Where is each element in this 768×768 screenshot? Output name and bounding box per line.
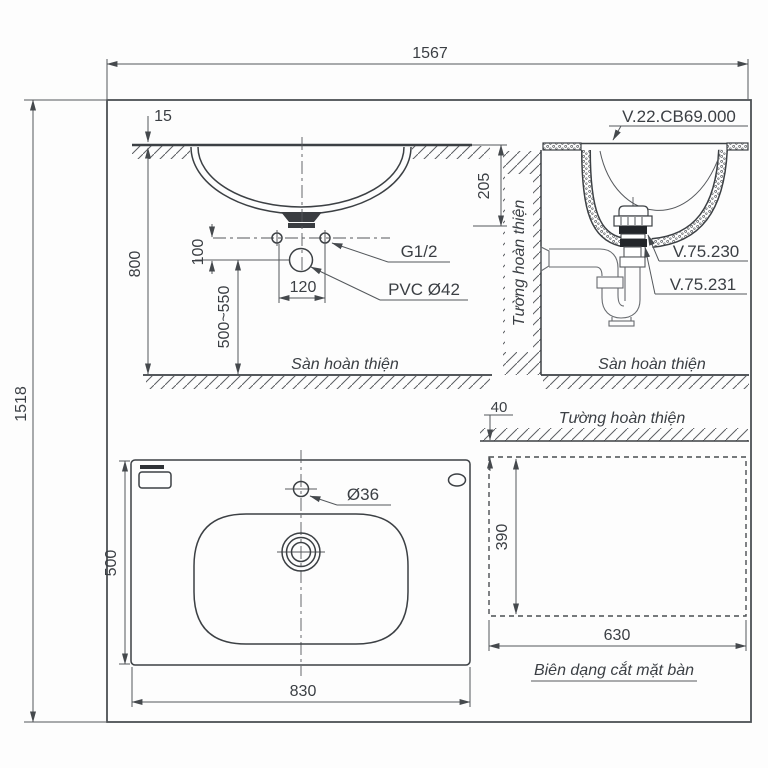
overflow-hole [449,474,466,486]
section-view: Tường hoàn thiện [473,107,749,389]
floor-hatch-left [146,376,490,389]
basin-depth-dim: 205 [476,173,493,200]
faucet-hole-dim: Ø36 [347,485,379,504]
cutout-rect [489,457,746,616]
floor-finish-label-left: Sàn hoàn thiện [291,356,399,373]
bowl-outer [191,147,411,214]
overall-width-dim: 1567 [412,45,448,62]
plan-width-dim: 830 [290,683,317,700]
drain-fitting [281,212,322,222]
drain-spec-label: PVC Ø42 [388,280,460,299]
wall-finish-label-cutout: Tường hoàn thiện [559,410,686,427]
drain-code-label: V.75.230 [673,242,740,261]
trap-code-label: V.75.231 [670,275,737,294]
counter-height-dim: 800 [127,251,144,278]
wall-finish-label-section: Tường hoàn thiện [511,200,528,327]
floor-hatch-right [543,376,749,389]
counter-thickness-dim: 15 [154,108,172,125]
technical-drawing-page: 1567 1518 15 800 [0,0,768,768]
supply-spec-label: G1/2 [401,242,438,261]
lavabo-installation-drawing: 1567 1518 15 800 [0,0,768,768]
wall-gap-dim: 40 [491,399,508,416]
counter-hatch-left [132,146,190,159]
bowl-back-rim [600,151,720,210]
drain-hole [290,249,313,272]
trap-height-dim: 500~550 [216,286,233,349]
counter-section-left [543,143,581,150]
counter-hatch-right [412,146,490,159]
floor-finish-label-right: Sàn hoàn thiện [598,356,706,373]
drain-gasket-lower [620,239,647,247]
bowl-band-right [652,150,723,243]
hole-spacing-dim: 120 [290,279,317,296]
plan-view: Ø36 500 830 [103,450,470,707]
counter-section-right [727,143,748,150]
drain-gasket-upper [619,226,647,234]
cutout-view: Tường hoàn thiện 40 390 630 Biên dạng cắ… [480,399,749,681]
drain-assembly [614,197,652,267]
plan-depth-dim: 500 [103,550,120,577]
logo-plate [139,472,171,488]
basin-code-label: V.22.CB69.000 [622,107,736,126]
overall-height-dim: 1518 [13,386,30,422]
cut-depth-dim: 390 [494,524,511,551]
counter-plan [131,460,470,665]
cut-width-dim: 630 [604,627,631,644]
hole-offset-dim: 100 [190,239,207,266]
brand-logo [140,465,164,469]
cutout-wall-hatch [480,428,748,441]
cutout-caption: Biên dạng cắt mặt bàn [534,660,694,679]
side-view: 15 800 100 500~550 120 G1/2 PVC Ø42 Sàn … [127,108,507,389]
